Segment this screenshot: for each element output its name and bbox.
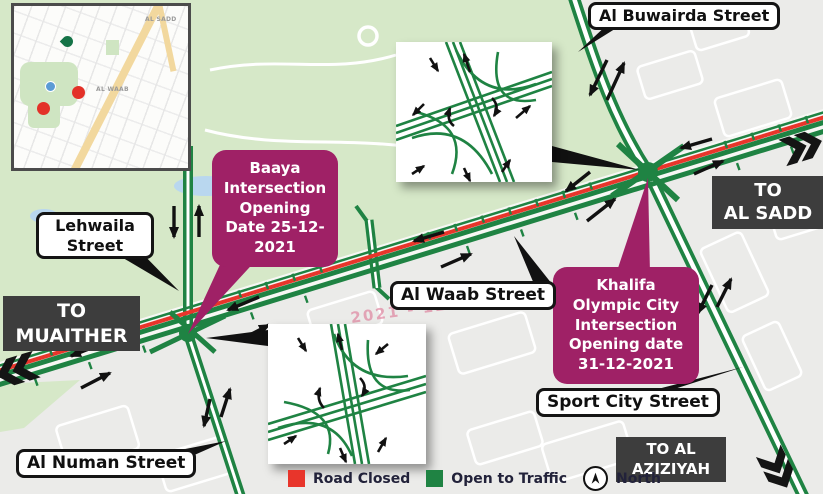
khalifa-opening-callout: Khalifa Olympic City Intersection Openin… [553,267,699,384]
baaya-opening-callout: Baaya Intersection Opening Date 25-12- 2… [212,150,338,267]
street-label-al-waab: Al Waab Street [390,281,556,310]
road-closed-swatch [288,470,305,487]
inset-district-label: AL WAAB [96,86,129,93]
destination-al-sadd: TO AL SADD [712,176,823,229]
inset-park-3 [106,40,119,55]
poi-marker-icon [45,81,56,92]
street-label-lehwaila: Lehwaila Street [36,212,154,259]
open-to-traffic-swatch [426,470,443,487]
road-closure-map: AL SADD AL WAAB [0,0,823,494]
legend: Road Closed Open to Traffic North [288,466,661,491]
street-label-al-buwairda: Al Buwairda Street [588,2,780,30]
closure-marker-icon [37,102,50,115]
north-label: North [616,471,661,487]
inset-district-label: AL SADD [145,16,177,23]
street-label-sport-city: Sport City Street [536,388,720,417]
open-to-traffic-label: Open to Traffic [451,471,567,487]
road-closed-label: Road Closed [313,471,410,487]
street-label-al-numan: Al Numan Street [16,449,196,478]
closure-marker-icon [72,86,85,99]
alwaab-label-pointer [514,236,552,284]
north-compass-icon [583,466,608,491]
baaya-intersection-detail-inset [268,324,426,464]
location-overview-inset-map: AL SADD AL WAAB [11,3,191,171]
bottom-inset-pointer [206,330,268,346]
khalifa-intersection-detail-inset [396,42,552,182]
destination-muaither: TO MUAITHER [3,296,140,351]
